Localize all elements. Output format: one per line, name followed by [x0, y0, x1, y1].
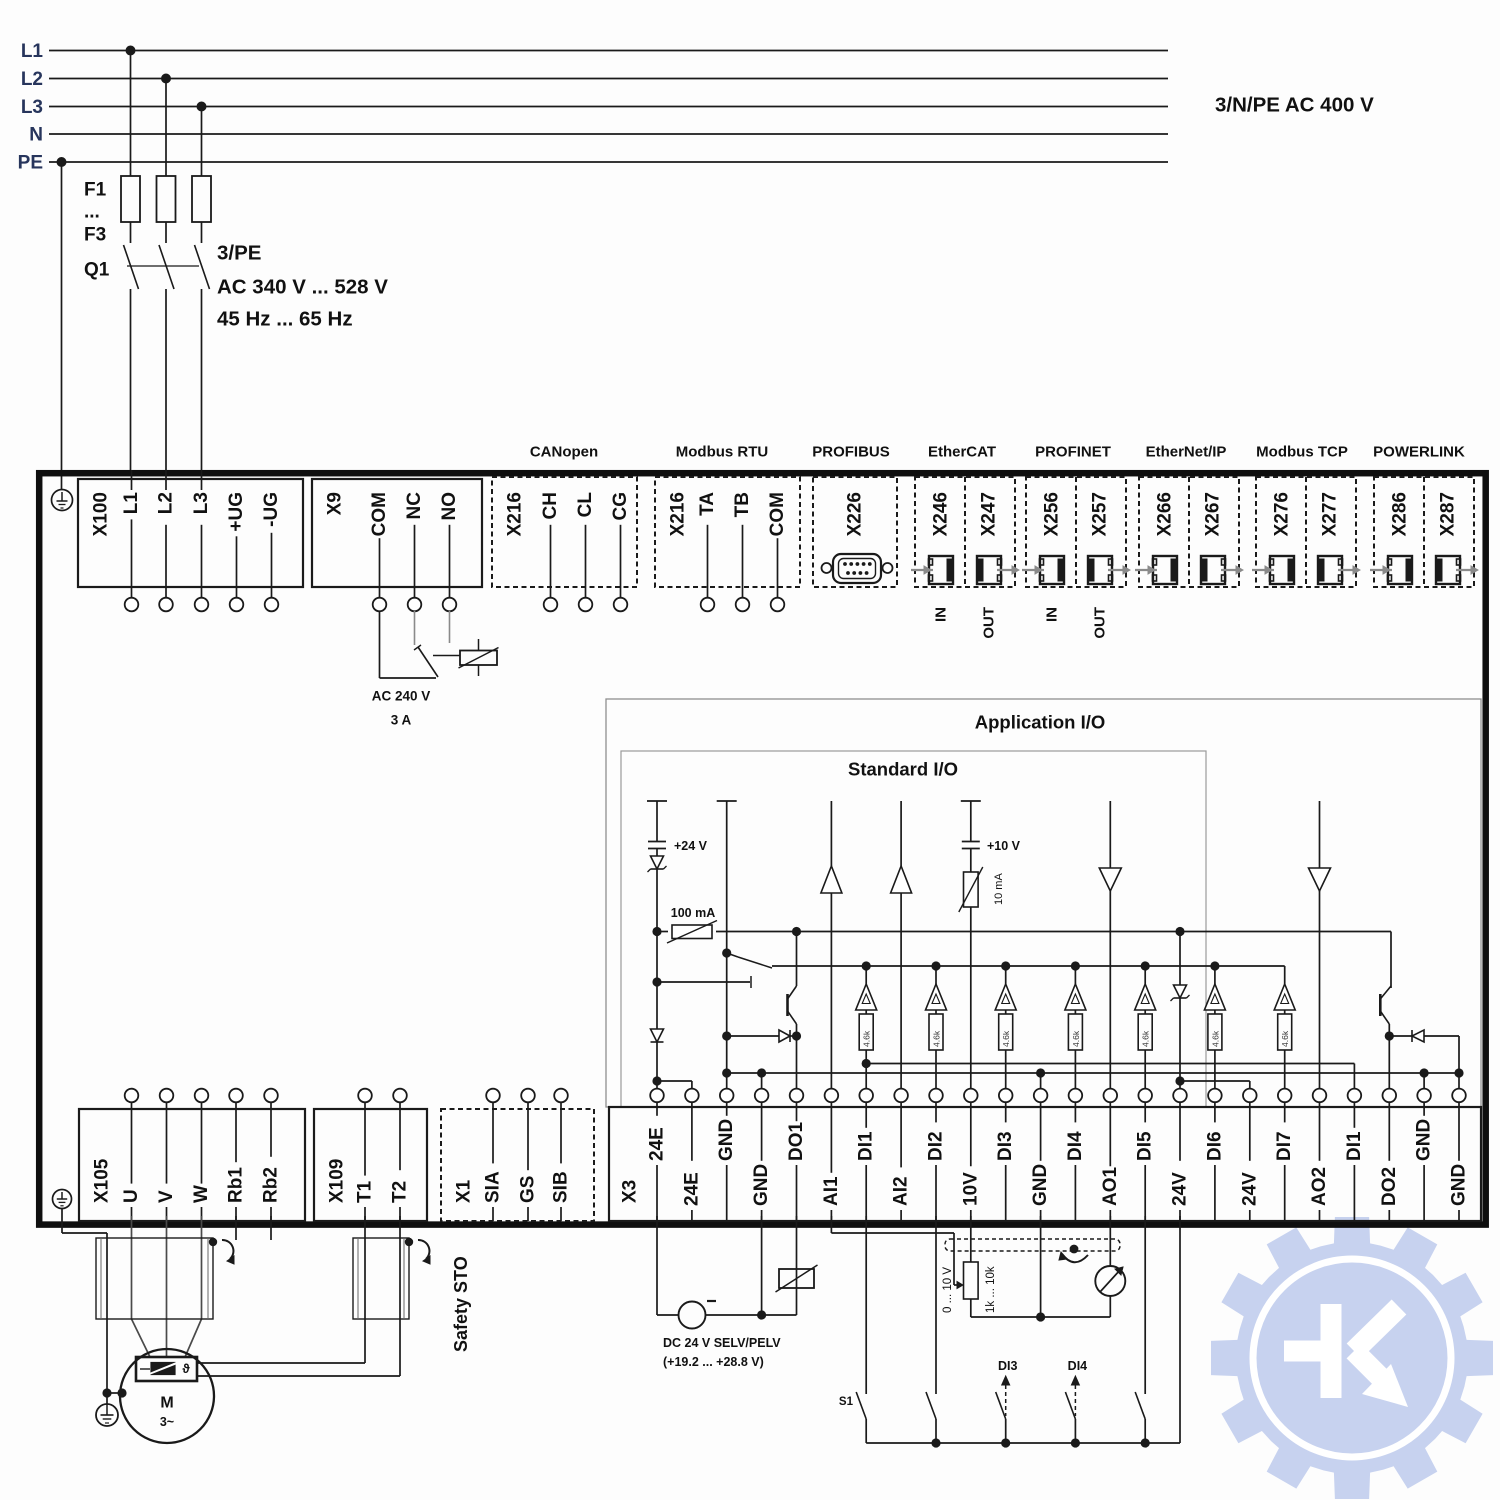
svg-text:(+19.2 ... +28.8 V): (+19.2 ... +28.8 V) [663, 1355, 764, 1369]
svg-text:24V: 24V [1170, 1172, 1191, 1206]
svg-text:AC 340 V ... 528 V: AC 340 V ... 528 V [217, 276, 388, 299]
svg-text:1k ... 10k: 1k ... 10k [985, 1266, 997, 1313]
svg-text:N: N [29, 125, 43, 146]
svg-text:Q1: Q1 [84, 260, 110, 281]
svg-text:EtherCAT: EtherCAT [928, 444, 996, 461]
svg-text:4.6k: 4.6k [1280, 1030, 1290, 1047]
svg-text:DC 24 V SELV/PELV: DC 24 V SELV/PELV [663, 1336, 781, 1350]
svg-text:3~: 3~ [160, 1415, 174, 1429]
svg-text:L3: L3 [21, 97, 43, 118]
svg-text:W: W [191, 1185, 212, 1203]
svg-text:DI2: DI2 [926, 1131, 947, 1161]
svg-text:DI1: DI1 [1344, 1131, 1365, 1161]
svg-text:10V: 10V [960, 1172, 981, 1206]
svg-text:GND: GND [1414, 1119, 1435, 1161]
svg-text:...: ... [84, 202, 100, 223]
svg-text:X246: X246 [931, 492, 952, 536]
svg-text:DO2: DO2 [1379, 1167, 1400, 1206]
svg-text:DI3: DI3 [998, 1359, 1018, 1373]
svg-text:L3: L3 [191, 492, 212, 514]
svg-text:F3: F3 [84, 225, 106, 246]
svg-text:DO1: DO1 [786, 1122, 807, 1162]
svg-text:24V: 24V [1239, 1172, 1260, 1206]
svg-text:10 mA: 10 mA [993, 873, 1005, 905]
svg-text:X276: X276 [1272, 492, 1293, 536]
svg-text:COM: COM [369, 492, 390, 536]
svg-text:T1: T1 [355, 1180, 376, 1203]
svg-text:AO2: AO2 [1309, 1167, 1330, 1206]
svg-text:NC: NC [404, 492, 425, 520]
svg-text:SIB: SIB [551, 1171, 572, 1203]
svg-text:+UG: +UG [226, 492, 247, 532]
svg-text:3/N/PE AC 400 V: 3/N/PE AC 400 V [1215, 94, 1374, 117]
svg-text:Rb1: Rb1 [226, 1167, 247, 1203]
svg-text:X216: X216 [668, 492, 689, 536]
svg-text:L1: L1 [121, 492, 142, 515]
svg-text:-UG: -UG [261, 492, 282, 527]
svg-text:DI3: DI3 [995, 1131, 1016, 1161]
svg-text:Standard I/O: Standard I/O [848, 759, 958, 780]
svg-text:S1: S1 [839, 1396, 854, 1408]
svg-text:4.6k: 4.6k [862, 1030, 872, 1047]
svg-text:DI7: DI7 [1274, 1131, 1295, 1161]
svg-text:DI4: DI4 [1068, 1359, 1088, 1373]
svg-text:0 ... 10 V: 0 ... 10 V [942, 1267, 954, 1313]
svg-text:100 mA: 100 mA [671, 906, 715, 920]
svg-text:X1: X1 [454, 1179, 475, 1203]
svg-text:24E: 24E [647, 1127, 668, 1161]
svg-text:COM: COM [767, 492, 788, 536]
svg-text:3 A: 3 A [391, 713, 412, 728]
svg-text:AO1: AO1 [1100, 1167, 1121, 1207]
svg-text:CANopen: CANopen [530, 444, 598, 461]
svg-text:X109: X109 [327, 1159, 348, 1203]
svg-text:X247: X247 [979, 492, 1000, 536]
svg-text:24E: 24E [681, 1172, 702, 1206]
svg-text:X105: X105 [92, 1158, 113, 1203]
svg-text:45 Hz ... 65 Hz: 45 Hz ... 65 Hz [217, 308, 353, 331]
svg-text:X277: X277 [1320, 492, 1341, 536]
svg-text:3/PE: 3/PE [217, 242, 261, 265]
svg-text:TA: TA [697, 492, 718, 516]
svg-text:EtherNet/IP: EtherNet/IP [1146, 444, 1227, 461]
svg-text:Application I/O: Application I/O [975, 712, 1106, 733]
svg-text:X287: X287 [1438, 492, 1459, 536]
svg-text:CH: CH [540, 492, 561, 519]
svg-text:X9: X9 [325, 492, 346, 515]
svg-text:L1: L1 [21, 41, 44, 62]
svg-text:Safety STO: Safety STO [451, 1256, 471, 1352]
svg-text:Rb2: Rb2 [261, 1167, 282, 1203]
svg-text:X286: X286 [1390, 492, 1411, 536]
svg-text:X100: X100 [91, 492, 112, 536]
svg-text:CL: CL [575, 492, 596, 518]
svg-text:4.6k: 4.6k [1210, 1030, 1220, 1047]
svg-text:AI2: AI2 [891, 1176, 912, 1206]
svg-text:L2: L2 [156, 492, 177, 514]
svg-text:CG: CG [610, 492, 631, 521]
svg-text:AC 240 V: AC 240 V [372, 689, 431, 704]
svg-text:4.6k: 4.6k [932, 1030, 942, 1047]
svg-text:PE: PE [18, 153, 43, 174]
svg-text:T2: T2 [390, 1181, 411, 1203]
svg-text:IN: IN [933, 607, 950, 622]
svg-text:M: M [160, 1395, 173, 1412]
svg-text:IN: IN [1044, 607, 1061, 622]
svg-text:GND: GND [716, 1119, 737, 1161]
svg-text:F1: F1 [84, 180, 107, 201]
svg-text:4.6k: 4.6k [1071, 1030, 1081, 1047]
svg-text:GND: GND [751, 1164, 772, 1206]
svg-text:X226: X226 [845, 492, 866, 536]
svg-text:SIA: SIA [483, 1171, 504, 1203]
svg-text:X267: X267 [1203, 492, 1224, 536]
svg-text:Modbus RTU: Modbus RTU [676, 444, 768, 461]
svg-text:DI6: DI6 [1204, 1131, 1225, 1161]
svg-text:POWERLINK: POWERLINK [1373, 444, 1465, 461]
svg-text:+24 V: +24 V [674, 839, 708, 853]
svg-text:X216: X216 [505, 492, 526, 536]
svg-text:U: U [121, 1189, 142, 1203]
svg-text:OUT: OUT [981, 607, 998, 639]
svg-text:DI1: DI1 [856, 1131, 877, 1161]
svg-text:+10 V: +10 V [987, 839, 1021, 853]
svg-text:GND: GND [1449, 1164, 1470, 1206]
svg-text:4.6k: 4.6k [1001, 1030, 1011, 1047]
svg-text:L2: L2 [21, 69, 43, 90]
svg-text:Modbus TCP: Modbus TCP [1256, 444, 1348, 461]
svg-text:X3: X3 [620, 1180, 641, 1203]
svg-text:ϑ: ϑ [182, 1362, 190, 1376]
svg-text:OUT: OUT [1092, 607, 1109, 639]
svg-text:GND: GND [1030, 1164, 1051, 1206]
svg-text:PROFIBUS: PROFIBUS [812, 444, 890, 461]
svg-text:DI4: DI4 [1065, 1131, 1086, 1161]
svg-text:4.6k: 4.6k [1141, 1030, 1151, 1047]
svg-text:AI1: AI1 [821, 1176, 842, 1206]
svg-text:X266: X266 [1155, 492, 1176, 536]
svg-text:PROFINET: PROFINET [1035, 444, 1111, 461]
svg-text:X257: X257 [1090, 492, 1111, 536]
svg-text:GS: GS [518, 1176, 539, 1203]
svg-text:TB: TB [732, 492, 753, 517]
svg-text:DI5: DI5 [1135, 1131, 1156, 1161]
svg-text:X256: X256 [1042, 492, 1063, 536]
svg-text:V: V [156, 1190, 177, 1203]
svg-text:NO: NO [439, 492, 460, 521]
